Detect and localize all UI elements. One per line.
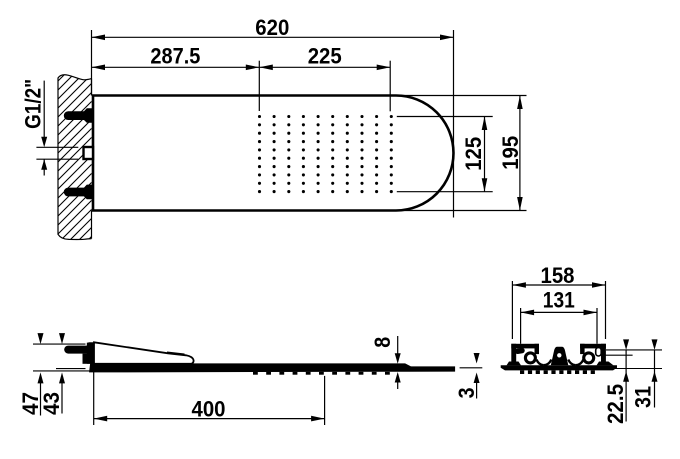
svg-text:8: 8 [370, 337, 395, 348]
svg-text:131: 131 [543, 287, 575, 312]
svg-text:287.5: 287.5 [150, 44, 200, 69]
svg-text:3: 3 [454, 387, 479, 398]
svg-text:225: 225 [308, 44, 342, 69]
svg-text:125: 125 [461, 137, 486, 171]
svg-text:620: 620 [255, 15, 289, 40]
svg-text:400: 400 [192, 397, 226, 422]
svg-text:31: 31 [631, 386, 656, 408]
svg-text:G1/2": G1/2" [21, 79, 46, 129]
svg-text:43: 43 [39, 392, 64, 415]
svg-text:22.5: 22.5 [603, 384, 628, 424]
svg-text:158: 158 [541, 263, 575, 288]
svg-text:195: 195 [498, 136, 523, 170]
